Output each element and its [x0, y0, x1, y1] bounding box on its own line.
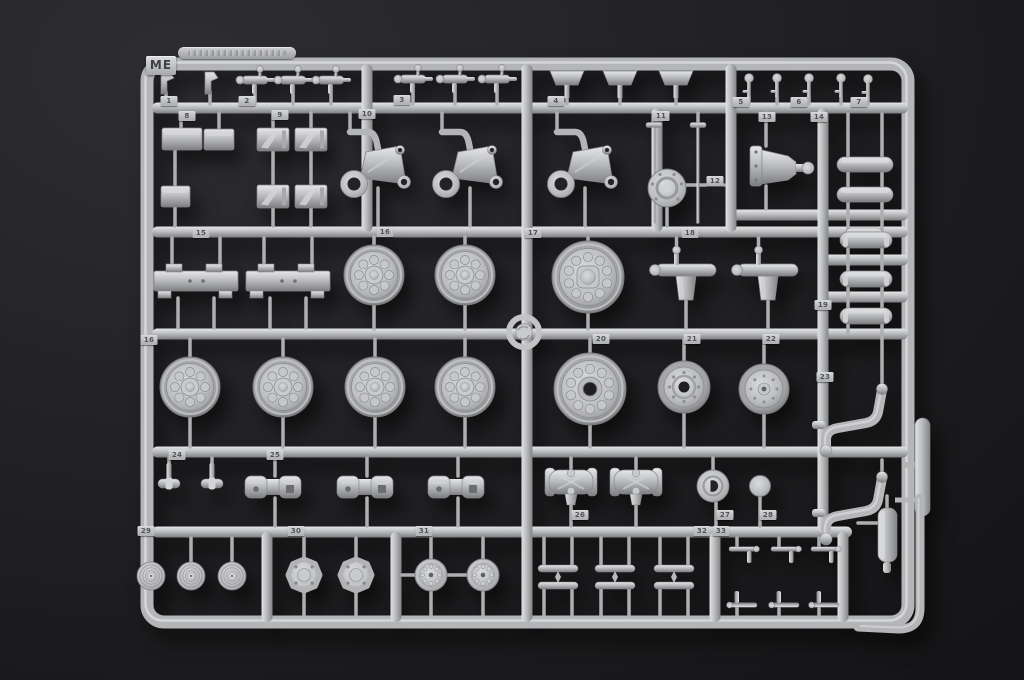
part-6-pin — [835, 74, 846, 98]
part-29-dome — [177, 562, 205, 590]
part-30-hub — [340, 559, 372, 591]
part-number-tag-27: 27 — [717, 510, 734, 520]
part-number-tag-9: 9 — [272, 110, 289, 120]
part-7-pin — [862, 75, 873, 99]
part-number-tag-22: 22 — [763, 334, 780, 344]
part-15-plate — [154, 264, 238, 298]
part-19-tank-cylinder — [840, 232, 892, 324]
bottom-right-cylinder — [878, 508, 897, 573]
part-number-tag-1: 1 — [161, 96, 178, 106]
part-number-tag-31: 31 — [416, 526, 433, 536]
sprue-photo: ME 1 2 3 4 5 6 7 8 9 10 11 12 13 14 15 1… — [0, 0, 1024, 680]
part-number-tag-16b: 16 — [141, 335, 158, 345]
part-4-flap — [603, 71, 637, 98]
part-number-tag-11: 11 — [653, 111, 670, 121]
part-number-tag-12: 12 — [707, 176, 724, 186]
part-number-tag-4: 4 — [548, 96, 565, 106]
part-number-tag-8: 8 — [179, 111, 196, 121]
part-number-tag-6: 6 — [791, 97, 808, 107]
part-25-link-block — [245, 476, 301, 498]
part-20-big-wheel-hole — [554, 353, 626, 425]
part-16-road-wheel — [435, 357, 495, 417]
part-16-road-wheel — [253, 357, 313, 417]
part-18-axle — [732, 246, 799, 300]
part-16-road-wheel — [435, 245, 495, 305]
part-15-plate — [246, 264, 330, 298]
part-4-flap — [550, 71, 584, 98]
part-10-bracket — [548, 132, 618, 198]
part-number-tag-18: 18 — [682, 228, 699, 238]
part-5-pin — [771, 74, 782, 98]
part-25-link-block — [337, 476, 393, 498]
part-number-tag-16: 16 — [377, 227, 394, 237]
part-16-road-wheel — [345, 357, 405, 417]
part-9-plate — [257, 128, 327, 208]
part-number-tag-10: 10 — [359, 109, 376, 119]
parts-row-4 — [160, 353, 789, 425]
part-number-tag-30: 30 — [288, 526, 305, 536]
part-28-disc — [750, 476, 771, 497]
part-number-tag-2: 2 — [239, 96, 256, 106]
part-number-tag-14: 14 — [811, 112, 828, 122]
part-26-diff-housing — [610, 468, 662, 505]
part-32-bars — [538, 565, 694, 589]
part-29-dome — [137, 562, 165, 590]
part-11-pin — [690, 123, 706, 224]
part-25-link-block — [428, 476, 484, 498]
part-number-tag-23: 23 — [817, 372, 834, 382]
part-number-tag-25: 25 — [267, 450, 284, 460]
part-18-axle — [650, 246, 717, 300]
part-10-bracket — [341, 132, 411, 198]
part-31-hub-disc — [467, 559, 499, 591]
part-8-box — [161, 128, 234, 207]
part-24-clamp — [158, 463, 180, 490]
part-27-cap-d-hole — [697, 470, 729, 502]
part-number-tag-24: 24 — [169, 450, 186, 460]
part-number-tag-26: 26 — [572, 510, 589, 520]
molded-code-plate — [178, 47, 296, 59]
part-number-tag-3: 3 — [394, 95, 411, 105]
part-number-tag-20: 20 — [593, 334, 610, 344]
part-number-tag-28: 28 — [760, 510, 777, 520]
part-24-clamp — [201, 463, 223, 490]
part-number-tag-21: 21 — [684, 334, 701, 344]
part-5-pin — [743, 74, 754, 98]
part-22-small-wheel-hub — [739, 364, 789, 414]
part-number-tag-7: 7 — [851, 97, 868, 107]
part-26-diff-housing — [545, 468, 597, 505]
part-33-t-levers — [727, 546, 842, 608]
part-31-hub-disc — [415, 559, 447, 591]
part-6-pin — [803, 74, 814, 98]
part-17-big-wheel — [552, 241, 624, 313]
part-number-tag-15: 15 — [193, 228, 210, 238]
part-number-tag-17: 17 — [525, 228, 542, 238]
part-12-dome-cap — [648, 169, 686, 207]
parts-row-5 — [158, 463, 771, 505]
part-number-tag-33: 33 — [713, 526, 730, 536]
part-29-dome — [218, 562, 246, 590]
part-30-hub — [288, 559, 320, 591]
part-16-road-wheel — [160, 357, 220, 417]
part-number-tag-13: 13 — [759, 112, 776, 122]
part-number-tag-19: 19 — [815, 300, 832, 310]
part-1-hook — [161, 72, 174, 94]
part-1-hook — [205, 72, 218, 94]
part-16-road-wheel — [344, 245, 404, 305]
part-10-bracket — [433, 132, 503, 198]
part-number-tag-29: 29 — [138, 526, 155, 536]
part-number-tag-32: 32 — [694, 526, 711, 536]
sprue-letter-plate: ME — [146, 56, 176, 75]
parts-row-6 — [137, 546, 842, 608]
part-4-flap — [659, 71, 693, 98]
part-13-axle-housing — [750, 146, 814, 186]
molded-code-emboss — [188, 50, 286, 56]
part-number-tag-5: 5 — [733, 97, 750, 107]
part-21-small-wheel — [658, 361, 710, 413]
